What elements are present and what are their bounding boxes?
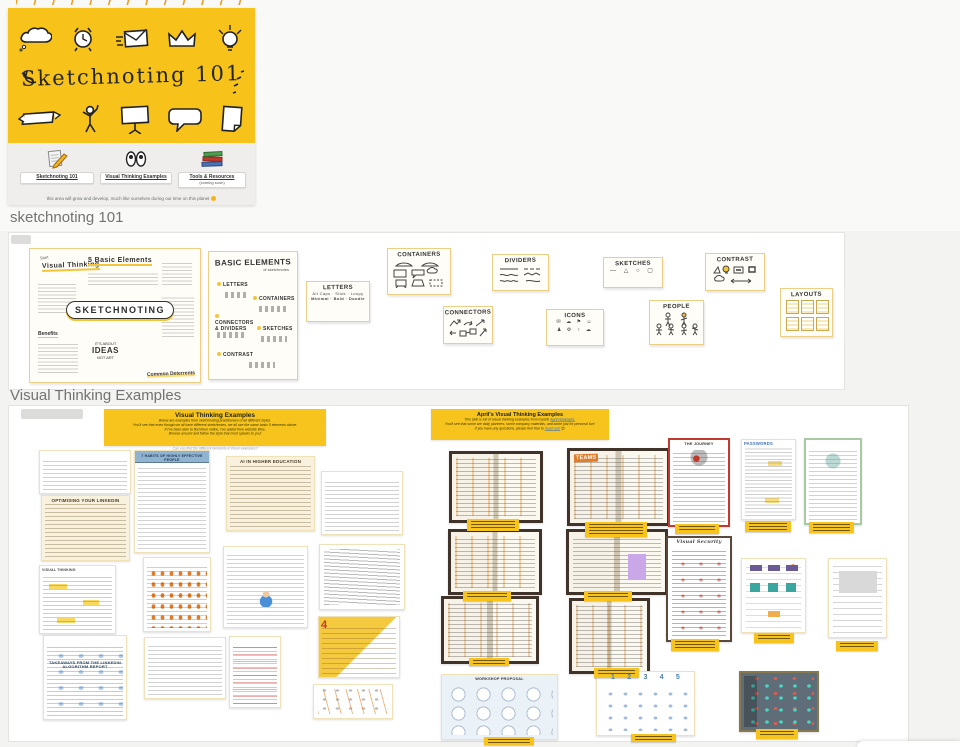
thumb-linkedin-optimising[interactable]: OPTIMISING YOUR LINKEDIN: [41, 495, 130, 561]
card-subtitle: of sketchnotes: [209, 267, 289, 272]
thumb-visual-thinking[interactable]: VISUAL THINKING: [39, 565, 116, 634]
caption-label: [469, 658, 509, 666]
crown-icon: [167, 28, 197, 50]
alarm-clock-icon: [70, 25, 96, 53]
scribble-decoration: [249, 362, 275, 368]
hero-footnote: this area will grow and develop, much li…: [8, 196, 255, 201]
thumb-notebook-2[interactable]: [448, 529, 542, 595]
scribble-decoration: [261, 336, 287, 342]
basic-element-sketches: Sketches: [257, 326, 293, 332]
scribble-decoration: [259, 306, 287, 312]
basic-element-connectors-dividers: Connectors & Dividers: [215, 314, 251, 332]
card-containers[interactable]: Containers: [387, 248, 451, 295]
card-title: Icons: [547, 313, 603, 320]
caption-label: [463, 591, 511, 601]
thumb-title: WORKSHOP PROPOSAL: [444, 677, 555, 681]
thumb-title: THE JOURNEY: [672, 442, 726, 446]
dots-doodle-icon: [231, 70, 247, 101]
section-title-sketchnoting-101: sketchnoting 101: [10, 209, 123, 226]
section-title-visual-thinking-examples: Visual Thinking Examples: [10, 387, 181, 404]
card-title: Basic Elements: [209, 257, 297, 268]
nav-button-sketchnoting-101[interactable]: Sketchnoting 101: [20, 172, 94, 184]
connector-arrows-doodle: [448, 318, 488, 338]
pencil-paper-icon: [20, 149, 94, 169]
icons-row-1: ✉ ☁ ⚑ ☺: [547, 319, 603, 327]
caption-label: [675, 524, 719, 534]
card-letters[interactable]: Letters All Caps · Stick · Loopy Minimal…: [306, 281, 370, 322]
nav-button-tools-resources[interactable]: Tools & Resources (coming soon): [178, 172, 246, 188]
card-dividers[interactable]: Dividers: [492, 254, 549, 291]
speech-bubble-icon: [168, 106, 202, 132]
thumb-title: TEAMS: [574, 454, 599, 463]
card-basic-elements[interactable]: Basic Elements of sketchnotes Letters Co…: [208, 251, 298, 380]
hero-card[interactable]: Sketchnoting 101: [8, 8, 255, 205]
left-board-title: Visual Thinking Examples: [104, 412, 326, 419]
thumb-five-steps[interactable]: 1 2 3 4 5: [596, 671, 695, 736]
right-board-header: April's Visual Thinking Examples This si…: [431, 409, 609, 440]
thumb-passwords[interactable]: PASSWORDS: [741, 439, 796, 520]
nav-button-sublabel: (coming soon): [180, 181, 244, 185]
thumb-title: 1 2 3 4 5: [599, 674, 692, 682]
card-title: Containers: [388, 251, 450, 258]
thumb-title: VISUAL THINKING: [42, 568, 113, 572]
corner-overlay-panel: [857, 741, 960, 747]
thumb-green-card[interactable]: [804, 438, 862, 525]
thumb-workshop-proposal[interactable]: WORKSHOP PROPOSAL: [441, 674, 558, 740]
thumb-notebook-purple[interactable]: [566, 529, 668, 595]
nav-button-label: Visual Thinking Examples: [102, 175, 170, 181]
divider-lines-doodle: [498, 266, 544, 284]
nav-button-visual-thinking-examples[interactable]: Visual Thinking Examples: [100, 172, 172, 184]
card-title: Dividers: [493, 258, 548, 265]
thumb-kanban-board[interactable]: [741, 558, 806, 633]
layout-thumbnails-grid: [781, 300, 832, 331]
stick-people-doodle: [654, 312, 700, 336]
stick-figure-icon: [79, 104, 101, 134]
thumb-notebook-3[interactable]: [441, 596, 539, 664]
thumb-title: PASSWORDS: [744, 442, 793, 447]
thumb-notebook-1[interactable]: [449, 451, 543, 523]
ribbon-banner-icon: [18, 107, 62, 131]
thumb-visual-security[interactable]: Visual Security: [666, 536, 732, 642]
icons-row-2: ♟ ⚙ ♀ ☁: [547, 327, 603, 335]
overview-deterrents-label: Common Deterrents: [147, 370, 195, 378]
caption-label: [836, 641, 878, 651]
caption-label: [631, 734, 676, 742]
lightbulb-icon: [215, 24, 245, 54]
right-board-intro: This side is full of visual thinking exa…: [431, 418, 608, 432]
card-title: People: [650, 304, 703, 311]
hero-title: Sketchnoting 101: [21, 61, 242, 91]
left-board-intro: Below are examples from sketchnoting pra…: [104, 419, 326, 437]
caption-label: [756, 729, 798, 739]
thumb-busy-color[interactable]: [39, 450, 131, 494]
basic-element-contrast: Contrast: [217, 352, 253, 358]
thumb-ai-higher-ed[interactable]: AI IN HIGHER EDUCATION: [226, 456, 315, 531]
basic-element-containers: Containers: [253, 296, 295, 302]
caption-label: [754, 633, 794, 643]
sign-placard-icon: [118, 104, 152, 134]
hero-banner: Sketchnoting 101: [8, 8, 255, 143]
scribble-decoration: [38, 343, 78, 373]
nav-button-label: Sketchnoting 101: [22, 175, 92, 181]
overview-ideas-note: IT'S ABOUT IDEAS NOT ART: [92, 341, 119, 360]
left-board-header: Visual Thinking Examples Below are examp…: [104, 409, 326, 446]
caption-label: [809, 522, 854, 533]
visual-thinking-examples-board: Visual Thinking Examples Below are examp…: [8, 405, 909, 742]
caption-label: [467, 519, 519, 531]
thumb-orange-grid[interactable]: [144, 637, 226, 699]
thumb-title: TAKEAWAYS FROM THE LINKEDIN ALGORITHM RE…: [46, 661, 124, 670]
book-stack-icon: [178, 149, 246, 169]
container-shapes-doodle: [392, 260, 446, 288]
thumb-slate-board[interactable]: [739, 671, 819, 732]
sun-emoji: [211, 196, 216, 201]
thumb-flow-arrows[interactable]: [313, 684, 393, 719]
contrast-doodles: [711, 265, 759, 285]
orange-dashes-decoration: [16, 0, 252, 5]
caption-label: [585, 522, 647, 537]
strip-handle-pill[interactable]: [11, 235, 31, 244]
thumb-notebook-teams[interactable]: TEAMS: [567, 448, 670, 526]
card-title: Sketches: [604, 260, 662, 267]
card-title: Connectors: [444, 310, 492, 317]
card-title: Layouts: [781, 292, 832, 299]
thumb-linkedin-takeaways[interactable]: TAKEAWAYS FROM THE LINKEDIN ALGORITHM RE…: [43, 635, 127, 720]
thumb-diagonal-4[interactable]: 4: [318, 616, 400, 678]
overview-cloud-title: SKETCHNOTING: [66, 301, 174, 319]
card-sketches[interactable]: Sketches — △ ○ ▢: [603, 257, 663, 288]
scribble-decoration: [217, 332, 247, 338]
thumb-title: OPTIMISING YOUR LINKEDIN: [44, 498, 127, 503]
thumb-the-journey[interactable]: THE JOURNEY: [668, 438, 730, 527]
thumb-7-habits[interactable]: 7 HABITS OF HIGHLY EFFECTIVE PEOPLE: [134, 450, 210, 553]
scribble-decoration: [225, 292, 249, 298]
thumb-title: 4: [321, 619, 333, 632]
overview-start-label: Start: [40, 254, 49, 260]
overview-benefits-label: Benefits: [38, 331, 58, 338]
scribble-decoration: [162, 263, 192, 285]
envelope-icon: [115, 27, 149, 51]
thumb-notebook-4[interactable]: [569, 598, 650, 674]
card-connectors[interactable]: Connectors: [443, 306, 493, 344]
thumb-title: 7 HABITS OF HIGHLY EFFECTIVE PEOPLE: [137, 454, 207, 462]
thumb-title: AI IN HIGHER EDUCATION: [229, 459, 312, 464]
letters-row-2: Minimal · Bold · Doodle: [307, 296, 369, 301]
scribble-decoration: [88, 271, 158, 285]
caption-label: [671, 639, 719, 651]
thumb-boy-notes[interactable]: [223, 546, 308, 628]
basic-element-letters: Letters: [217, 282, 248, 288]
thumb-color-grid[interactable]: [321, 471, 403, 535]
overview-heading: 5 Basic Elements: [88, 257, 152, 266]
hero-nav: Sketchnoting 101 Visual Thinking Example…: [8, 143, 255, 205]
card-sketchnoting-overview[interactable]: Start Visual Thinking 5 Basic Elements S…: [29, 248, 201, 383]
card-title: Contrast: [706, 256, 764, 263]
author-link[interactable]: April Heinmann.: [550, 418, 575, 421]
thumb-red-portrait[interactable]: [229, 636, 281, 708]
sketch-shapes-row: — △ ○ ▢: [604, 267, 662, 275]
thumb-title: Visual Security: [670, 540, 728, 546]
card-title: Letters: [307, 284, 369, 291]
thumb-orange-list[interactable]: [143, 557, 211, 632]
thumb-gantt-chart[interactable]: [828, 558, 887, 638]
card-layouts[interactable]: Layouts: [780, 288, 833, 337]
thumb-gray-scribble[interactable]: [319, 544, 405, 610]
caption-label: [584, 591, 632, 601]
caption-label: [484, 737, 534, 745]
card-contrast[interactable]: Contrast: [705, 253, 765, 291]
board-handle-pill[interactable]: [21, 409, 83, 419]
card-people[interactable]: People: [649, 300, 704, 345]
card-icons[interactable]: Icons ✉ ☁ ⚑ ☺ ♟ ⚙ ♀ ☁: [546, 309, 604, 346]
eyes-icon: [100, 149, 172, 169]
thought-cloud-icon: [18, 26, 52, 52]
paper-sheet-icon: [219, 105, 245, 133]
reach-out-link[interactable]: reach out!: [545, 427, 560, 430]
sketchnoting-101-strip: Start Visual Thinking 5 Basic Elements S…: [8, 232, 845, 390]
caption-label: [745, 521, 791, 532]
